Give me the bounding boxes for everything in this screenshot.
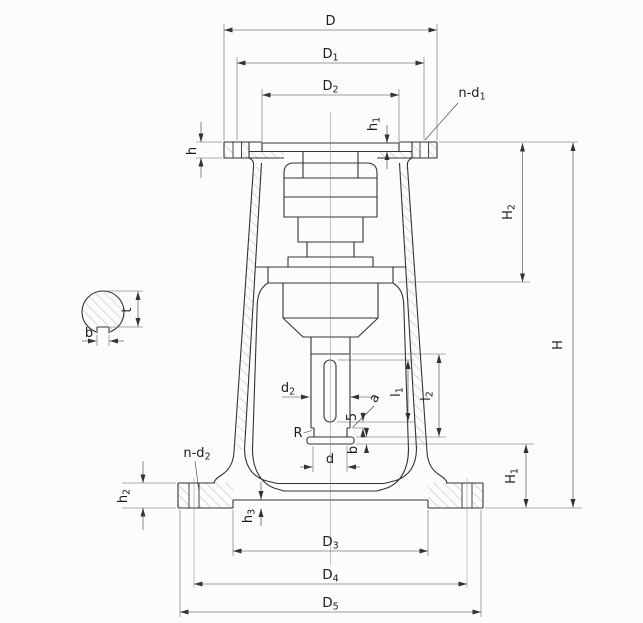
dim-label-b-key: b (85, 326, 93, 341)
dim-label-5: 5 (345, 413, 360, 421)
dim-label-h3: h3 (241, 509, 258, 523)
dim-label-H: H (551, 340, 566, 350)
dim-label-H1: H1 (504, 468, 521, 484)
technical-drawing-svg: D D1 D2 h1 n-d1 h H2 H H1 l1 l2 d2 R 5 a… (0, 0, 643, 623)
shaft-slot (324, 360, 336, 422)
dim-label-t: t (120, 307, 135, 312)
dim-label-H2: H2 (501, 204, 518, 220)
drawing-canvas: D D1 D2 h1 n-d1 h H2 H H1 l1 l2 d2 R 5 a… (0, 0, 643, 623)
dim-label-D2: D2 (322, 79, 338, 96)
dim-label-n-d2: n-d2 (183, 446, 210, 463)
dim-label-D4: D4 (322, 567, 338, 585)
dim-label-n-d1: n-d1 (458, 86, 485, 103)
leader-R (304, 431, 313, 434)
small-dimension-arrows (82, 122, 387, 530)
leader-n-d1 (425, 103, 458, 140)
dim-label-d: d (326, 452, 334, 467)
dim-label-a: a (366, 391, 383, 405)
dim-label-h2: h2 (116, 489, 133, 503)
section-hatching (82, 142, 483, 508)
dimension-lines (138, 30, 573, 612)
dim-label-D5: D5 (322, 595, 338, 613)
dim-label-l1: l1 (389, 387, 406, 397)
centerlines (194, 112, 467, 588)
dimension-labels: D D1 D2 h1 n-d1 h H2 H H1 l1 l2 d2 R 5 a… (85, 14, 566, 613)
dim-label-R: R (293, 426, 302, 441)
dim-label-d2: d2 (281, 381, 295, 398)
dim-label-h: h (185, 147, 200, 155)
dim-label-D1: D1 (322, 47, 338, 64)
extension-lines (97, 24, 582, 617)
dim-label-D3: D3 (322, 534, 338, 552)
dim-label-h1: h1 (366, 117, 383, 131)
dim-label-b-shaft: b (346, 446, 361, 454)
dim-label-D: D (325, 14, 335, 29)
